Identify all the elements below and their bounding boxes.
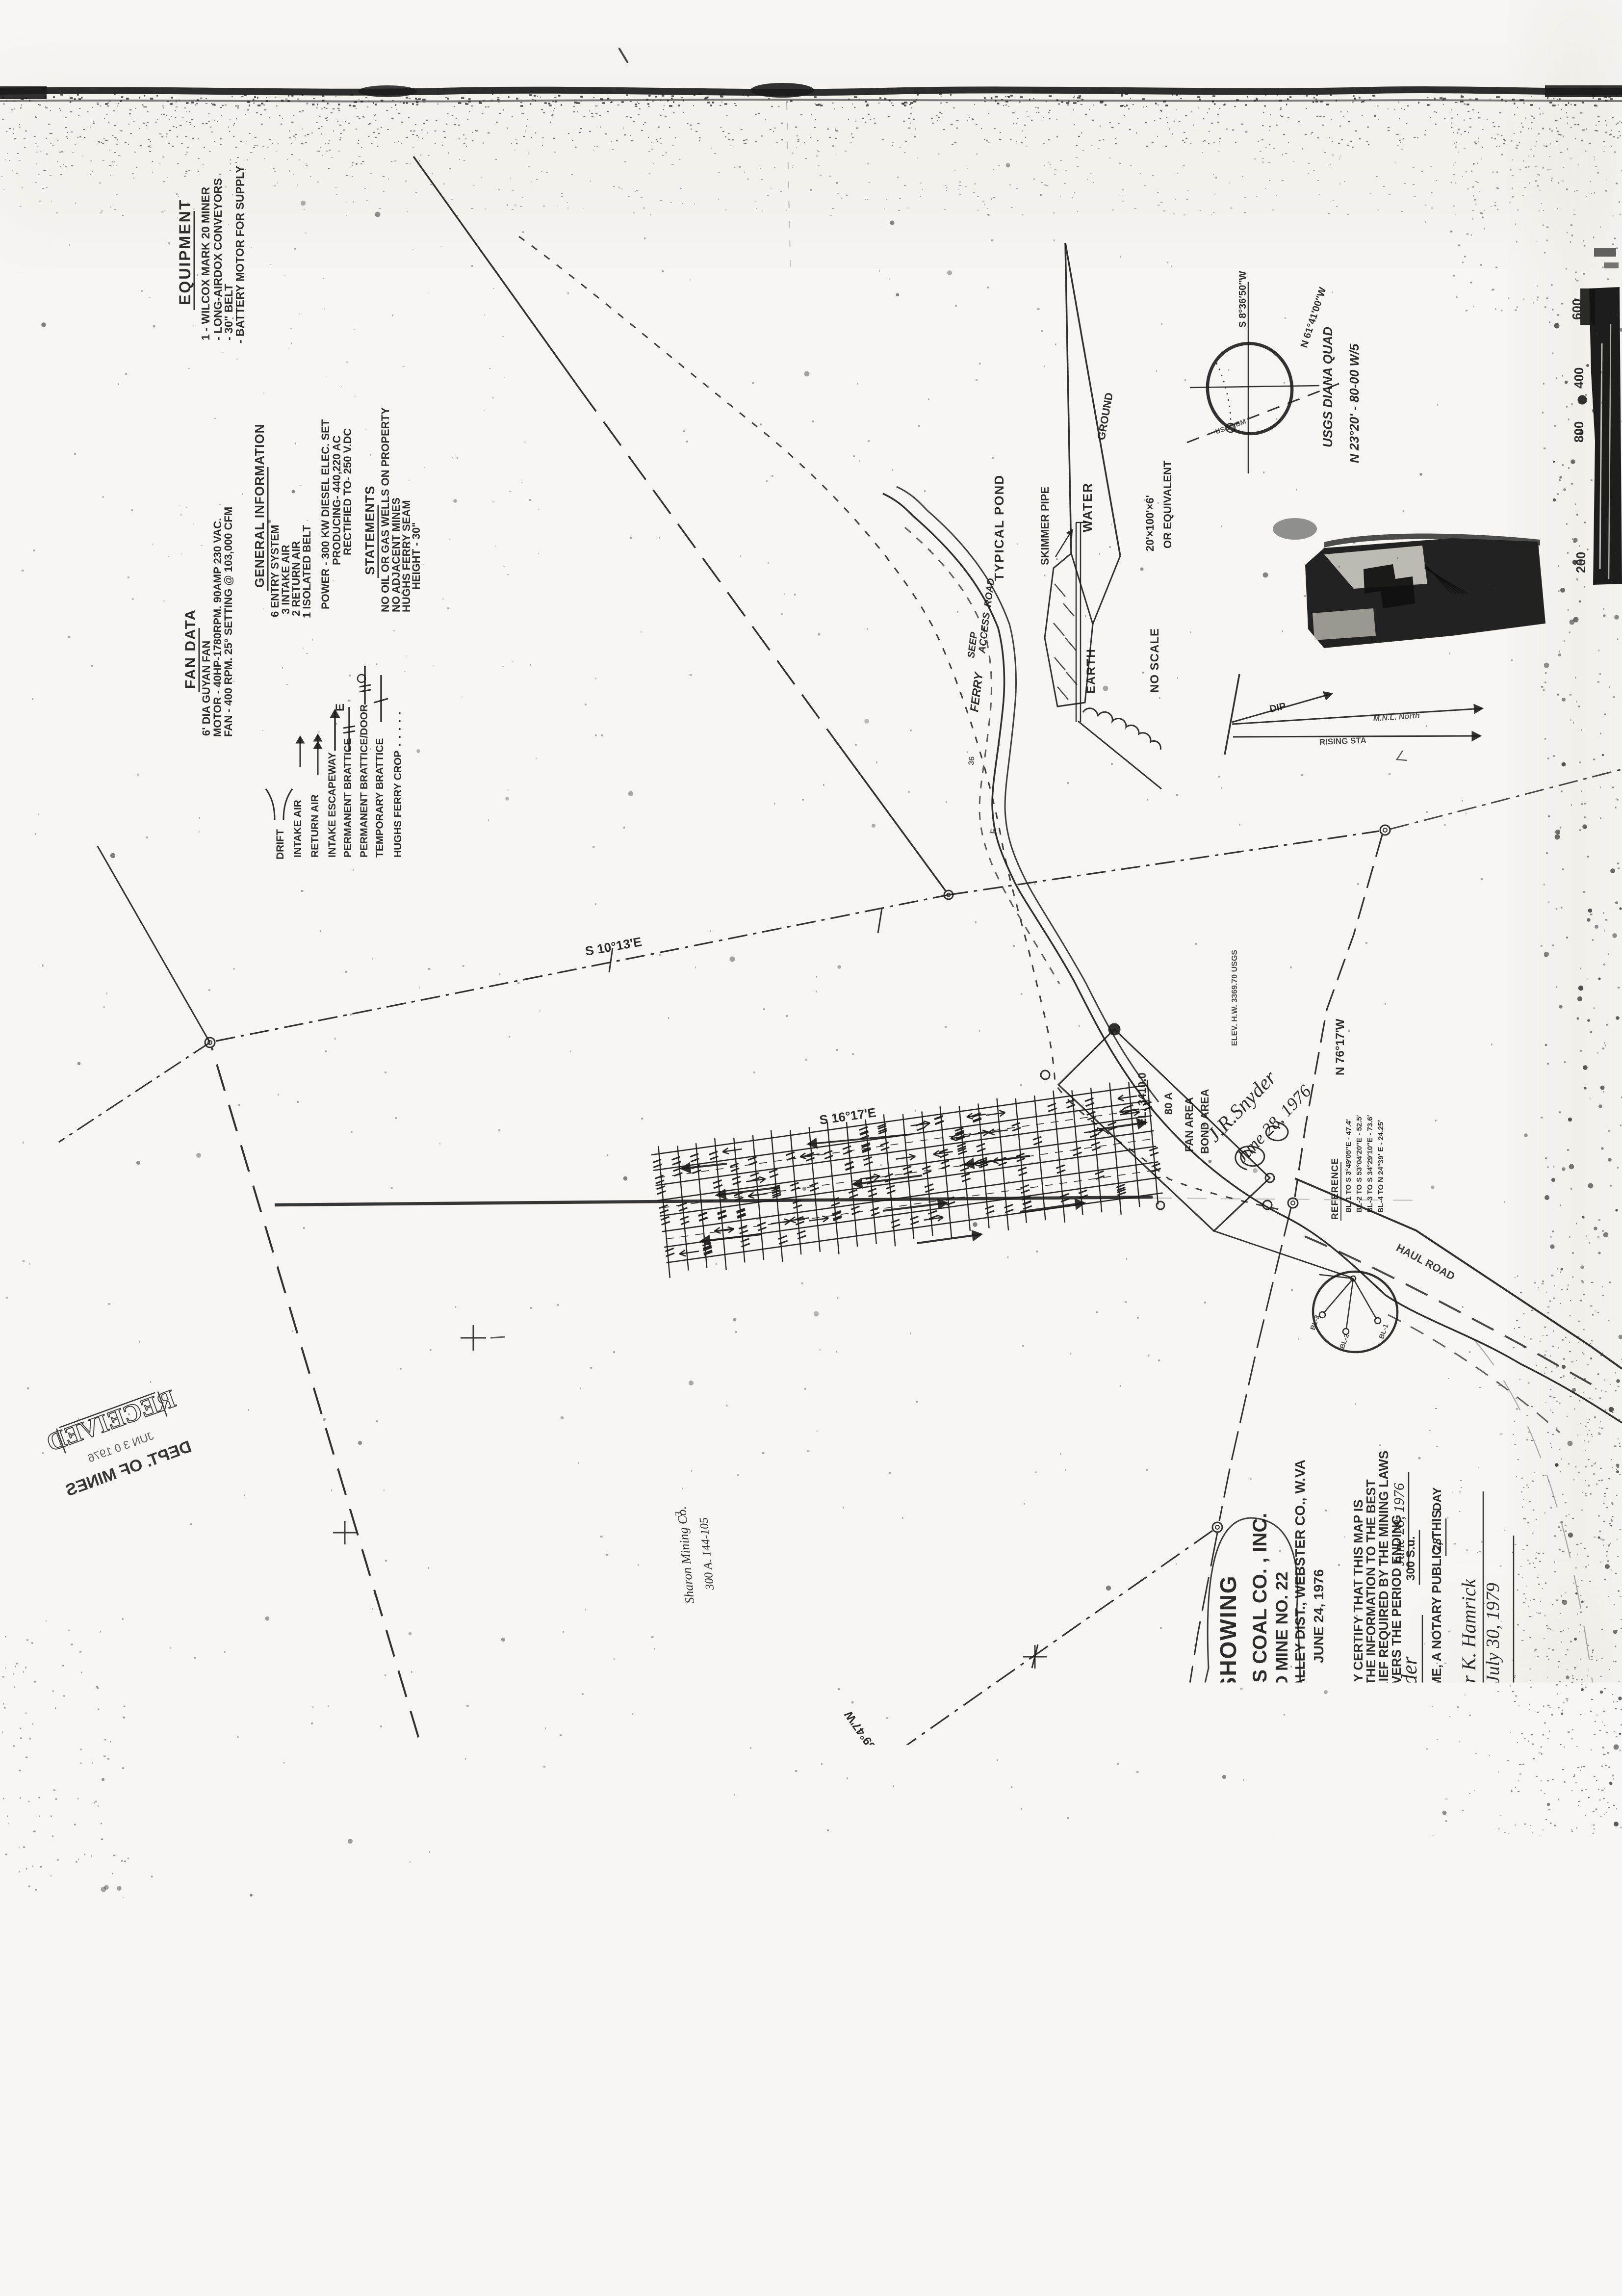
svg-text:L.R.Snyder: L.R.Snyder xyxy=(1397,1656,1421,1753)
svg-text:1 - WILCOX MARK 20 MINER: 1 - WILCOX MARK 20 MINER xyxy=(199,187,212,340)
svg-text:TYPICAL POND: TYPICAL POND xyxy=(992,474,1006,581)
svg-text:6' DIA GUYAN FAN: 6' DIA GUYAN FAN xyxy=(200,641,212,736)
svg-text:N 76°17'W: N 76°17'W xyxy=(1334,1018,1347,1075)
svg-text:FAN - 400 RPM. 25° SETTING @ 1: FAN - 400 RPM. 25° SETTING @ 103,000 CFM xyxy=(222,507,234,737)
svg-text:800: 800 xyxy=(1571,421,1586,443)
svg-text:PERMIT MAP SHOWING: PERMIT MAP SHOWING xyxy=(1215,1575,1241,1851)
svg-text:- BATTERY MOTOR FOR SUPPLY: - BATTERY MOTOR FOR SUPPLY xyxy=(233,166,246,344)
svg-text:BL-3 TO S 34°29′10″E - 73.6′: BL-3 TO S 34°29′10″E - 73.6′ xyxy=(1366,1115,1374,1213)
svg-text:REFERENCE: REFERENCE xyxy=(1330,1158,1340,1220)
svg-text:SCALE 1″= 200′: SCALE 1″= 200′ xyxy=(1313,1727,1326,1815)
svg-text:JUNE 24, 1976: JUNE 24, 1976 xyxy=(1311,1569,1326,1663)
svg-text:PERMANENT BRATTICE/DOOR: PERMANENT BRATTICE/DOOR xyxy=(359,704,370,858)
svg-text:STATEMENTS: STATEMENTS xyxy=(362,486,377,575)
svg-text:TEMPORARY BRATTICE: TEMPORARY BRATTICE xyxy=(374,738,386,858)
svg-text:DAY: DAY xyxy=(1431,1487,1444,1511)
svg-text:USGS DIANA QUAD: USGS DIANA QUAD xyxy=(1320,327,1335,447)
svg-text:WATER: WATER xyxy=(1080,482,1095,532)
svg-text:DRIFT: DRIFT xyxy=(275,829,286,860)
svg-text:36: 36 xyxy=(967,756,976,765)
svg-text:80 A: 80 A xyxy=(1162,1092,1175,1115)
svg-text:20'×100'×6': 20'×100'×6' xyxy=(1144,495,1156,551)
svg-text:BL-1 TO S 3°49′05″E - 47.4′: BL-1 TO S 3°49′05″E - 47.4′ xyxy=(1344,1119,1353,1213)
svg-text:BOND AREA: BOND AREA xyxy=(1199,1089,1211,1154)
svg-text:BL-2 TO S 53°04′20″E - 52.5′: BL-2 TO S 53°04′20″E - 52.5′ xyxy=(1355,1115,1364,1213)
svg-text:EARTH: EARTH xyxy=(1084,648,1098,694)
svg-text:600: 600 xyxy=(1570,299,1584,320)
svg-text:BL-4 TO N 24°39′ E - 24.25′: BL-4 TO N 24°39′ E - 24.25′ xyxy=(1377,1120,1385,1213)
svg-text:ACKNOWLEDGED BEFORE ME, A NOT: ACKNOWLEDGED BEFORE ME, A NOTARY PUBLIC,… xyxy=(1429,1510,1444,1859)
svg-text:E: E xyxy=(334,704,347,711)
svg-text:EQUIPMENT: EQUIPMENT xyxy=(176,199,194,305)
svg-text:INTAKE ESCAPEWAY: INTAKE ESCAPEWAY xyxy=(327,752,338,858)
svg-text:July 30, 1979: July 30, 1979 xyxy=(1483,1583,1503,1684)
svg-text:28: 28 xyxy=(1431,1538,1444,1552)
svg-text:FAN AREA: FAN AREA xyxy=(1183,1097,1195,1152)
svg-text:SKIMMER PIPE: SKIMMER PIPE xyxy=(1039,487,1051,565)
svg-text:GENERAL INFORMATION: GENERAL INFORMATION xyxy=(252,424,267,588)
svg-text:RETURN AIR: RETURN AIR xyxy=(309,794,321,858)
svg-text:OR EQUIVALENT: OR EQUIVALENT xyxy=(1161,460,1174,548)
svg-text:E: E xyxy=(989,828,998,834)
svg-text:ELEV. H.W. 3369.70 USGS: ELEV. H.W. 3369.70 USGS xyxy=(1231,950,1239,1046)
svg-text:EL. 3410.0: EL. 3410.0 xyxy=(1136,1072,1148,1125)
svg-text:300 S.u.: 300 S.u. xyxy=(1404,1536,1417,1581)
svg-text:400: 400 xyxy=(1571,367,1586,389)
svg-text:S 8°36′50″W: S 8°36′50″W xyxy=(1237,271,1248,328)
svg-text:RECTIFIED TO- 250 V.DC: RECTIFIED TO- 250 V.DC xyxy=(341,428,354,555)
svg-text:NO SCALE: NO SCALE xyxy=(1148,628,1161,693)
svg-text:PROPOSED MINE NO. 22: PROPOSED MINE NO. 22 xyxy=(1273,1572,1291,1770)
svg-text:3: 3 xyxy=(673,1511,684,1517)
svg-text:N 23°20' - 80-00 W/5: N 23°20' - 80-00 W/5 xyxy=(1347,343,1362,463)
svg-text:MY COMMISSION EXPIRES: MY COMMISSION EXPIRES xyxy=(1491,1692,1506,1863)
svg-text:HEIGHT - 30": HEIGHT - 30" xyxy=(410,522,422,590)
svg-text:1 ISOLATED BELT: 1 ISOLATED BELT xyxy=(301,525,313,618)
svg-text:HUGHS FERRY CROP: HUGHS FERRY CROP xyxy=(392,751,404,858)
svg-text:OF: OF xyxy=(1447,1848,1461,1864)
svg-text:Eleanor K. Hamrick: Eleanor K. Hamrick xyxy=(1458,1578,1480,1739)
svg-text:RISING STA: RISING STA xyxy=(1319,736,1366,747)
svg-text:FAN DATA: FAN DATA xyxy=(182,609,199,689)
svg-text:POWER - 300 KW DIESEL ELEC.: POWER - 300 KW DIESEL ELEC. SET xyxy=(319,419,332,609)
svg-text:PERMANENT BRATTICE: PERMANENT BRATTICE xyxy=(342,738,354,858)
svg-text:DE MOTTO-PEERLESS COAL CO. ,: DE MOTTO-PEERLESS COAL CO. , INC. xyxy=(1249,1513,1271,1884)
svg-text:INTAKE AIR: INTAKE AIR xyxy=(292,800,304,858)
